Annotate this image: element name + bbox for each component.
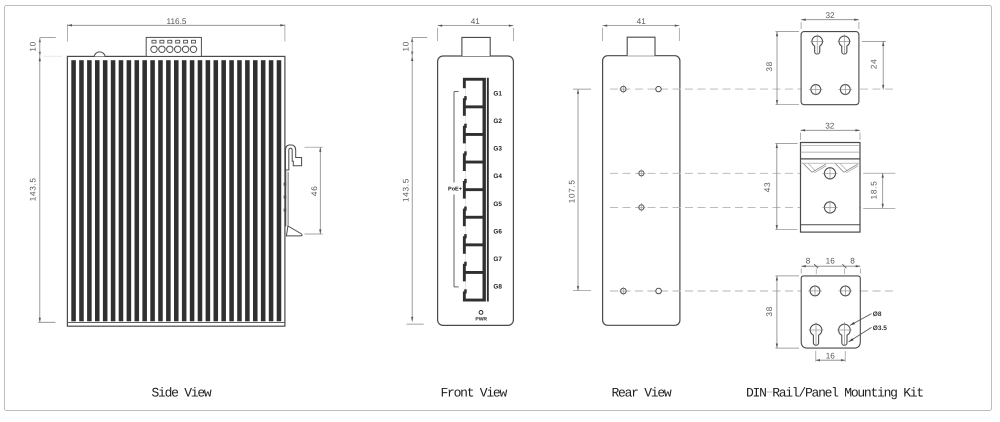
svg-text:PWR: PWR	[475, 317, 487, 323]
svg-text:10: 10	[28, 41, 37, 52]
svg-text:8: 8	[850, 257, 855, 266]
svg-text:8: 8	[806, 257, 811, 266]
svg-text:32: 32	[825, 11, 835, 20]
svg-text:143.5: 143.5	[402, 178, 411, 202]
svg-text:116.5: 116.5	[167, 17, 187, 26]
svg-text:Rear View: Rear View	[612, 386, 672, 401]
svg-text:143.5: 143.5	[28, 177, 37, 201]
svg-text:10: 10	[402, 41, 411, 52]
svg-text:107.5: 107.5	[567, 179, 576, 203]
svg-text:G5: G5	[493, 201, 502, 208]
svg-text:43: 43	[763, 182, 772, 193]
svg-text:18.5: 18.5	[869, 181, 878, 200]
svg-text:Front View: Front View	[441, 386, 508, 401]
svg-text:G3: G3	[493, 146, 502, 153]
svg-text:38: 38	[765, 61, 774, 72]
svg-text:16: 16	[826, 351, 836, 360]
svg-text:Ø8: Ø8	[873, 311, 882, 318]
svg-text:38: 38	[765, 306, 774, 317]
svg-text:41: 41	[471, 17, 481, 26]
svg-text:Ø3.5: Ø3.5	[873, 325, 887, 332]
svg-text:16: 16	[826, 257, 836, 266]
svg-text:G7: G7	[493, 256, 502, 263]
svg-text:DIN Rail/Panel Mounting Kit: DIN Rail/Panel Mounting Kit	[746, 386, 923, 401]
svg-text:41: 41	[637, 17, 647, 26]
svg-text:PoE+: PoE+	[448, 187, 462, 193]
svg-text:G8: G8	[493, 284, 502, 291]
svg-text:G4: G4	[493, 173, 502, 180]
svg-text:G2: G2	[493, 118, 502, 125]
svg-text:46: 46	[310, 186, 319, 197]
svg-text:Side View: Side View	[152, 386, 212, 401]
svg-text:G1: G1	[493, 90, 502, 97]
svg-text:G6: G6	[493, 228, 502, 235]
svg-text:32: 32	[825, 122, 835, 131]
svg-text:24: 24	[870, 59, 879, 70]
